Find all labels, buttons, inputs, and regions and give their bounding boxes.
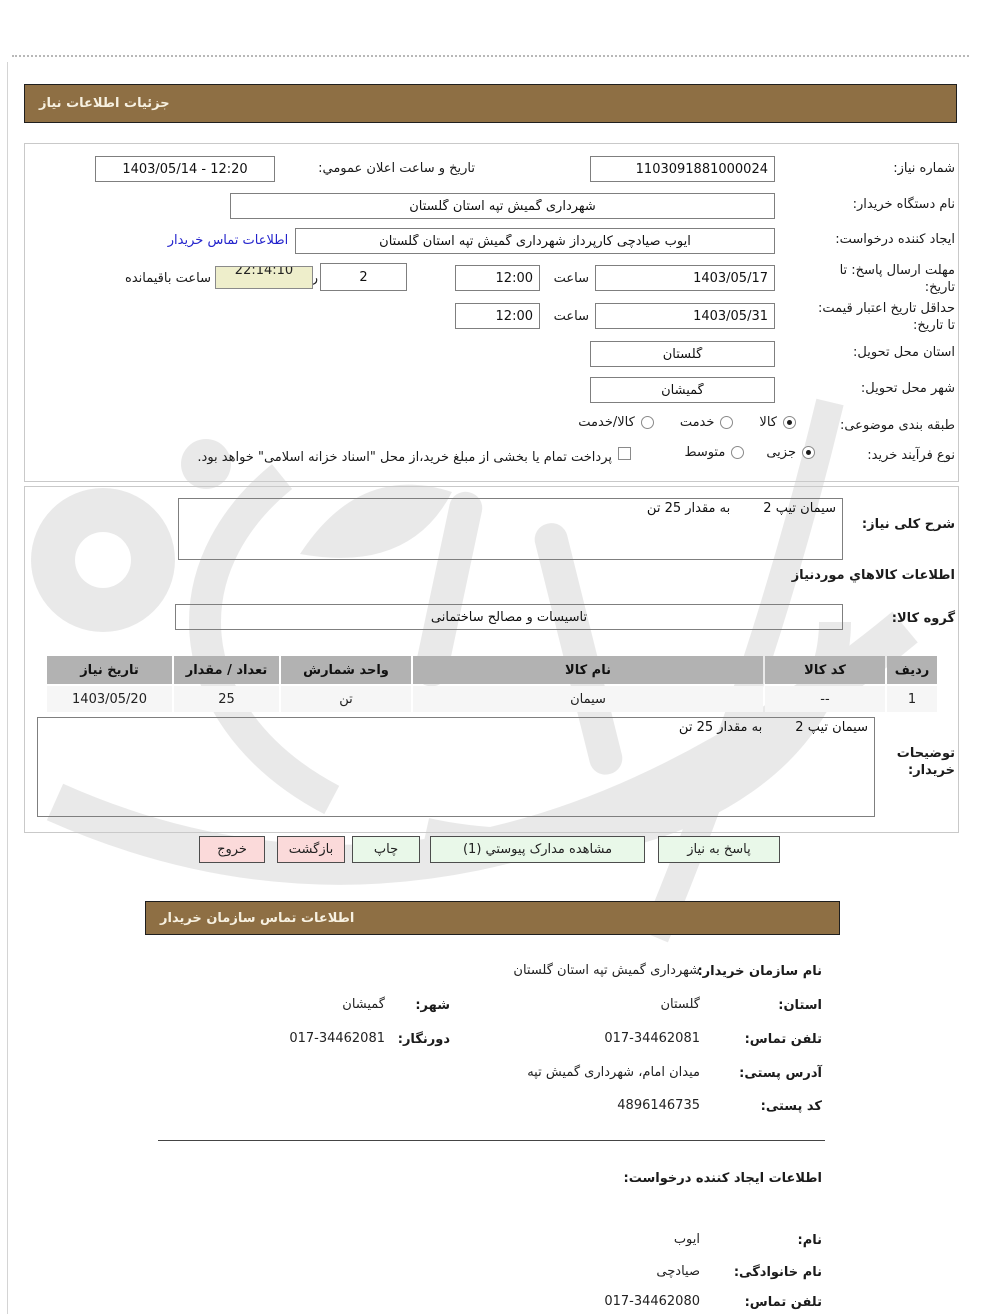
announce-datetime-input[interactable] — [95, 156, 275, 182]
col-quantity: تعداد / مقدار — [174, 656, 279, 684]
buyer-notes-label: توضیحات خریدار: — [875, 745, 955, 779]
need-number-label: شماره نیاز: — [805, 160, 955, 177]
price-validity-label: حداقل تاریخ اعتبار قیمت: تا تاریخ: — [817, 300, 955, 334]
delivery-city-input[interactable] — [590, 377, 775, 403]
left-edge-line — [7, 62, 8, 1314]
goods-info-heading: اطلاعات کالاهاي موردنیاز — [695, 567, 955, 584]
announce-datetime-label: تاریخ و ساعت اعلان عمومي: — [275, 160, 475, 177]
contact-org-value: شهرداری گمیش تپه استان گلستان — [440, 963, 700, 978]
cell-item-name: سیمان — [413, 686, 763, 712]
process-type-options: جزیی متوسط — [684, 445, 815, 460]
subject-class-options: کالا خدمت کالا/خدمت — [578, 415, 796, 430]
reply-deadline-days-input[interactable] — [320, 263, 407, 291]
cell-item-code: -- — [765, 686, 885, 712]
radio-service-icon[interactable] — [720, 416, 733, 429]
creator-phone-value: 017-34462080 — [500, 1294, 700, 1309]
buyer-contact-link[interactable]: اطلاعات تماس خریدار — [163, 233, 293, 248]
contact-address-value: میدان امام، شهرداری گمیش تپه — [400, 1065, 700, 1080]
process-option-minor-label: جزیی — [766, 445, 796, 460]
contact-city-value: گمیشان — [225, 997, 385, 1012]
price-validity-hour-input[interactable] — [455, 303, 540, 329]
contact-province-value: گلستان — [440, 997, 700, 1012]
details-header-title: جزئیات اطلاعات نیاز — [39, 96, 170, 111]
cell-quantity: 25 — [174, 686, 279, 712]
price-validity-date-input[interactable] — [595, 303, 775, 329]
goods-table-header-row: ردیف کد کالا نام کالا واحد شمارش تعداد /… — [47, 656, 937, 684]
subject-option-goods-label: کالا — [759, 415, 777, 430]
view-attachments-button[interactable]: مشاهده مدارک پیوستي (1) — [430, 836, 645, 863]
buyer-notes-textarea[interactable]: سیمان تیپ 2 به مقدار 25 تن — [37, 717, 875, 817]
contact-fax-value: 017-34462081 — [225, 1031, 385, 1046]
treasury-checkbox-label: پرداخت تمام یا بخشی از مبلغ خرید،از محل … — [140, 449, 612, 466]
buyer-org-input[interactable] — [230, 193, 775, 219]
cell-row-number: 1 — [887, 686, 937, 712]
radio-minor-icon[interactable] — [802, 446, 815, 459]
creator-first-name-value: ایوب — [500, 1232, 700, 1247]
reply-deadline-hour-label: ساعت — [547, 270, 589, 287]
contact-header-bar: اطلاعات تماس سازمان خریدار — [145, 901, 840, 935]
process-option-minor[interactable]: جزیی — [766, 445, 815, 460]
reply-deadline-date-input[interactable] — [595, 265, 775, 291]
contact-phone-value: 017-34462081 — [440, 1031, 700, 1046]
creator-last-name-value: صیادچی — [500, 1264, 700, 1279]
goods-group-input[interactable] — [175, 604, 843, 630]
price-validity-hour-label: ساعت — [547, 308, 589, 325]
col-row-number: ردیف — [887, 656, 937, 684]
need-desc-textarea[interactable]: سیمان تیپ 2 به مقدار 25 تن — [178, 498, 843, 560]
respond-to-need-button[interactable]: پاسخ به نیاز — [658, 836, 780, 863]
treasury-checkbox[interactable] — [618, 447, 631, 460]
need-number-input[interactable] — [590, 156, 775, 182]
radio-goods-service-icon[interactable] — [641, 416, 654, 429]
delivery-province-label: استان محل تحویل: — [775, 344, 955, 361]
request-creator-label: ایجاد کننده درخواست: — [765, 231, 955, 248]
col-unit: واحد شمارش — [281, 656, 411, 684]
process-option-medium-label: متوسط — [684, 445, 725, 460]
cell-need-date: 1403/05/20 — [47, 686, 172, 712]
subject-option-goods-service[interactable]: کالا/خدمت — [578, 415, 654, 430]
subject-option-goods-service-label: کالا/خدمت — [578, 415, 635, 430]
print-button[interactable]: چاپ — [352, 836, 420, 863]
subject-class-label: طبقه بندی موضوعی: — [775, 417, 955, 434]
subject-option-goods[interactable]: کالا — [759, 415, 796, 430]
contact-header-title: اطلاعات تماس سازمان خریدار — [160, 911, 354, 926]
subject-option-service[interactable]: خدمت — [680, 415, 734, 430]
process-option-medium[interactable]: متوسط — [684, 445, 744, 460]
tender-detail-page: جزئیات اطلاعات نیاز شماره نیاز: تاریخ و … — [0, 0, 981, 1314]
creator-heading: اطلاعات ایجاد کننده درخواست: — [522, 1170, 822, 1187]
reply-deadline-label: مهلت ارسال پاسخ: تا تاریخ: — [830, 262, 955, 296]
col-item-name: نام کالا — [413, 656, 763, 684]
goods-table-row: 1 -- سیمان تن 25 1403/05/20 — [47, 686, 937, 712]
delivery-province-input[interactable] — [590, 341, 775, 367]
goods-table: ردیف کد کالا نام کالا واحد شمارش تعداد /… — [45, 654, 939, 714]
countdown-timer: 22:14:10 — [215, 266, 313, 289]
details-header-bar: جزئیات اطلاعات نیاز — [24, 84, 957, 123]
back-button[interactable]: بازگشت — [277, 836, 345, 863]
hours-remaining-label: ساعت باقیمانده — [85, 270, 211, 287]
contact-postal-code-value: 4896146735 — [440, 1098, 700, 1113]
reply-deadline-hour-input[interactable] — [455, 265, 540, 291]
exit-button[interactable]: خروج — [199, 836, 265, 863]
subject-option-service-label: خدمت — [680, 415, 715, 430]
request-creator-input[interactable] — [295, 228, 775, 254]
buyer-org-label: نام دستگاه خریدار: — [775, 196, 955, 213]
section-separator — [158, 1140, 825, 1141]
radio-medium-icon[interactable] — [731, 446, 744, 459]
col-item-code: کد کالا — [765, 656, 885, 684]
delivery-city-label: شهر محل تحویل: — [775, 380, 955, 397]
top-dotted-divider — [12, 55, 969, 57]
radio-goods-icon[interactable] — [783, 416, 796, 429]
col-need-date: تاریخ نیاز — [47, 656, 172, 684]
cell-unit: تن — [281, 686, 411, 712]
